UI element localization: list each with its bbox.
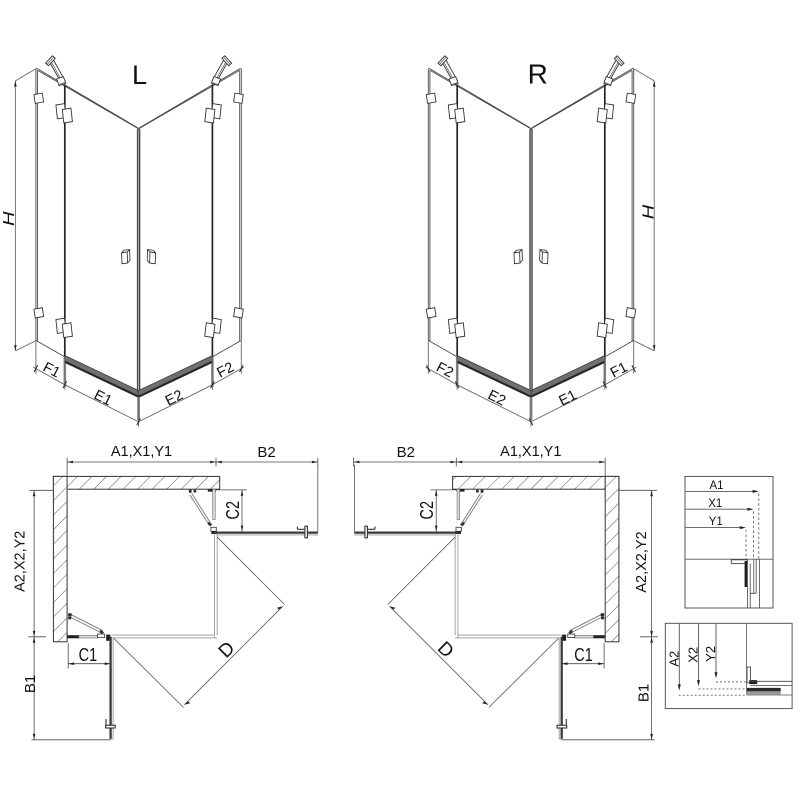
svg-text:F2: F2 (214, 359, 236, 381)
svg-text:B2: B2 (397, 444, 415, 461)
svg-text:B1: B1 (22, 675, 39, 693)
svg-text:C1: C1 (574, 644, 593, 665)
svg-text:B2: B2 (257, 444, 275, 461)
svg-text:D: D (215, 638, 240, 663)
svg-text:A2: A2 (667, 651, 682, 667)
svg-text:R: R (528, 59, 548, 90)
svg-text:D: D (433, 638, 458, 663)
svg-text:X2: X2 (686, 647, 701, 663)
svg-text:H: H (1, 211, 18, 226)
svg-text:C2: C2 (416, 501, 437, 520)
svg-text:B1: B1 (635, 684, 652, 702)
svg-text:A2,X2,Y2: A2,X2,Y2 (634, 531, 650, 592)
svg-text:L: L (132, 60, 147, 90)
svg-text:Y2: Y2 (703, 646, 718, 662)
svg-text:F2: F2 (433, 359, 455, 381)
svg-text:E1: E1 (91, 387, 114, 409)
svg-text:E2: E2 (485, 387, 508, 409)
svg-text:C1: C1 (79, 644, 98, 665)
svg-text:A1,X1,Y1: A1,X1,Y1 (500, 444, 561, 460)
svg-text:E2: E2 (163, 387, 186, 409)
svg-text:A1: A1 (709, 480, 723, 492)
svg-text:A1,X1,Y1: A1,X1,Y1 (111, 444, 172, 460)
svg-text:F1: F1 (40, 359, 62, 381)
svg-text:X1: X1 (708, 498, 722, 510)
svg-text:F1: F1 (608, 359, 630, 381)
svg-text:A2,X2,Y2: A2,X2,Y2 (13, 531, 29, 592)
svg-text:H: H (639, 204, 656, 219)
svg-text:Y1: Y1 (709, 516, 723, 528)
svg-text:C2: C2 (222, 501, 243, 520)
svg-text:E1: E1 (557, 387, 580, 409)
